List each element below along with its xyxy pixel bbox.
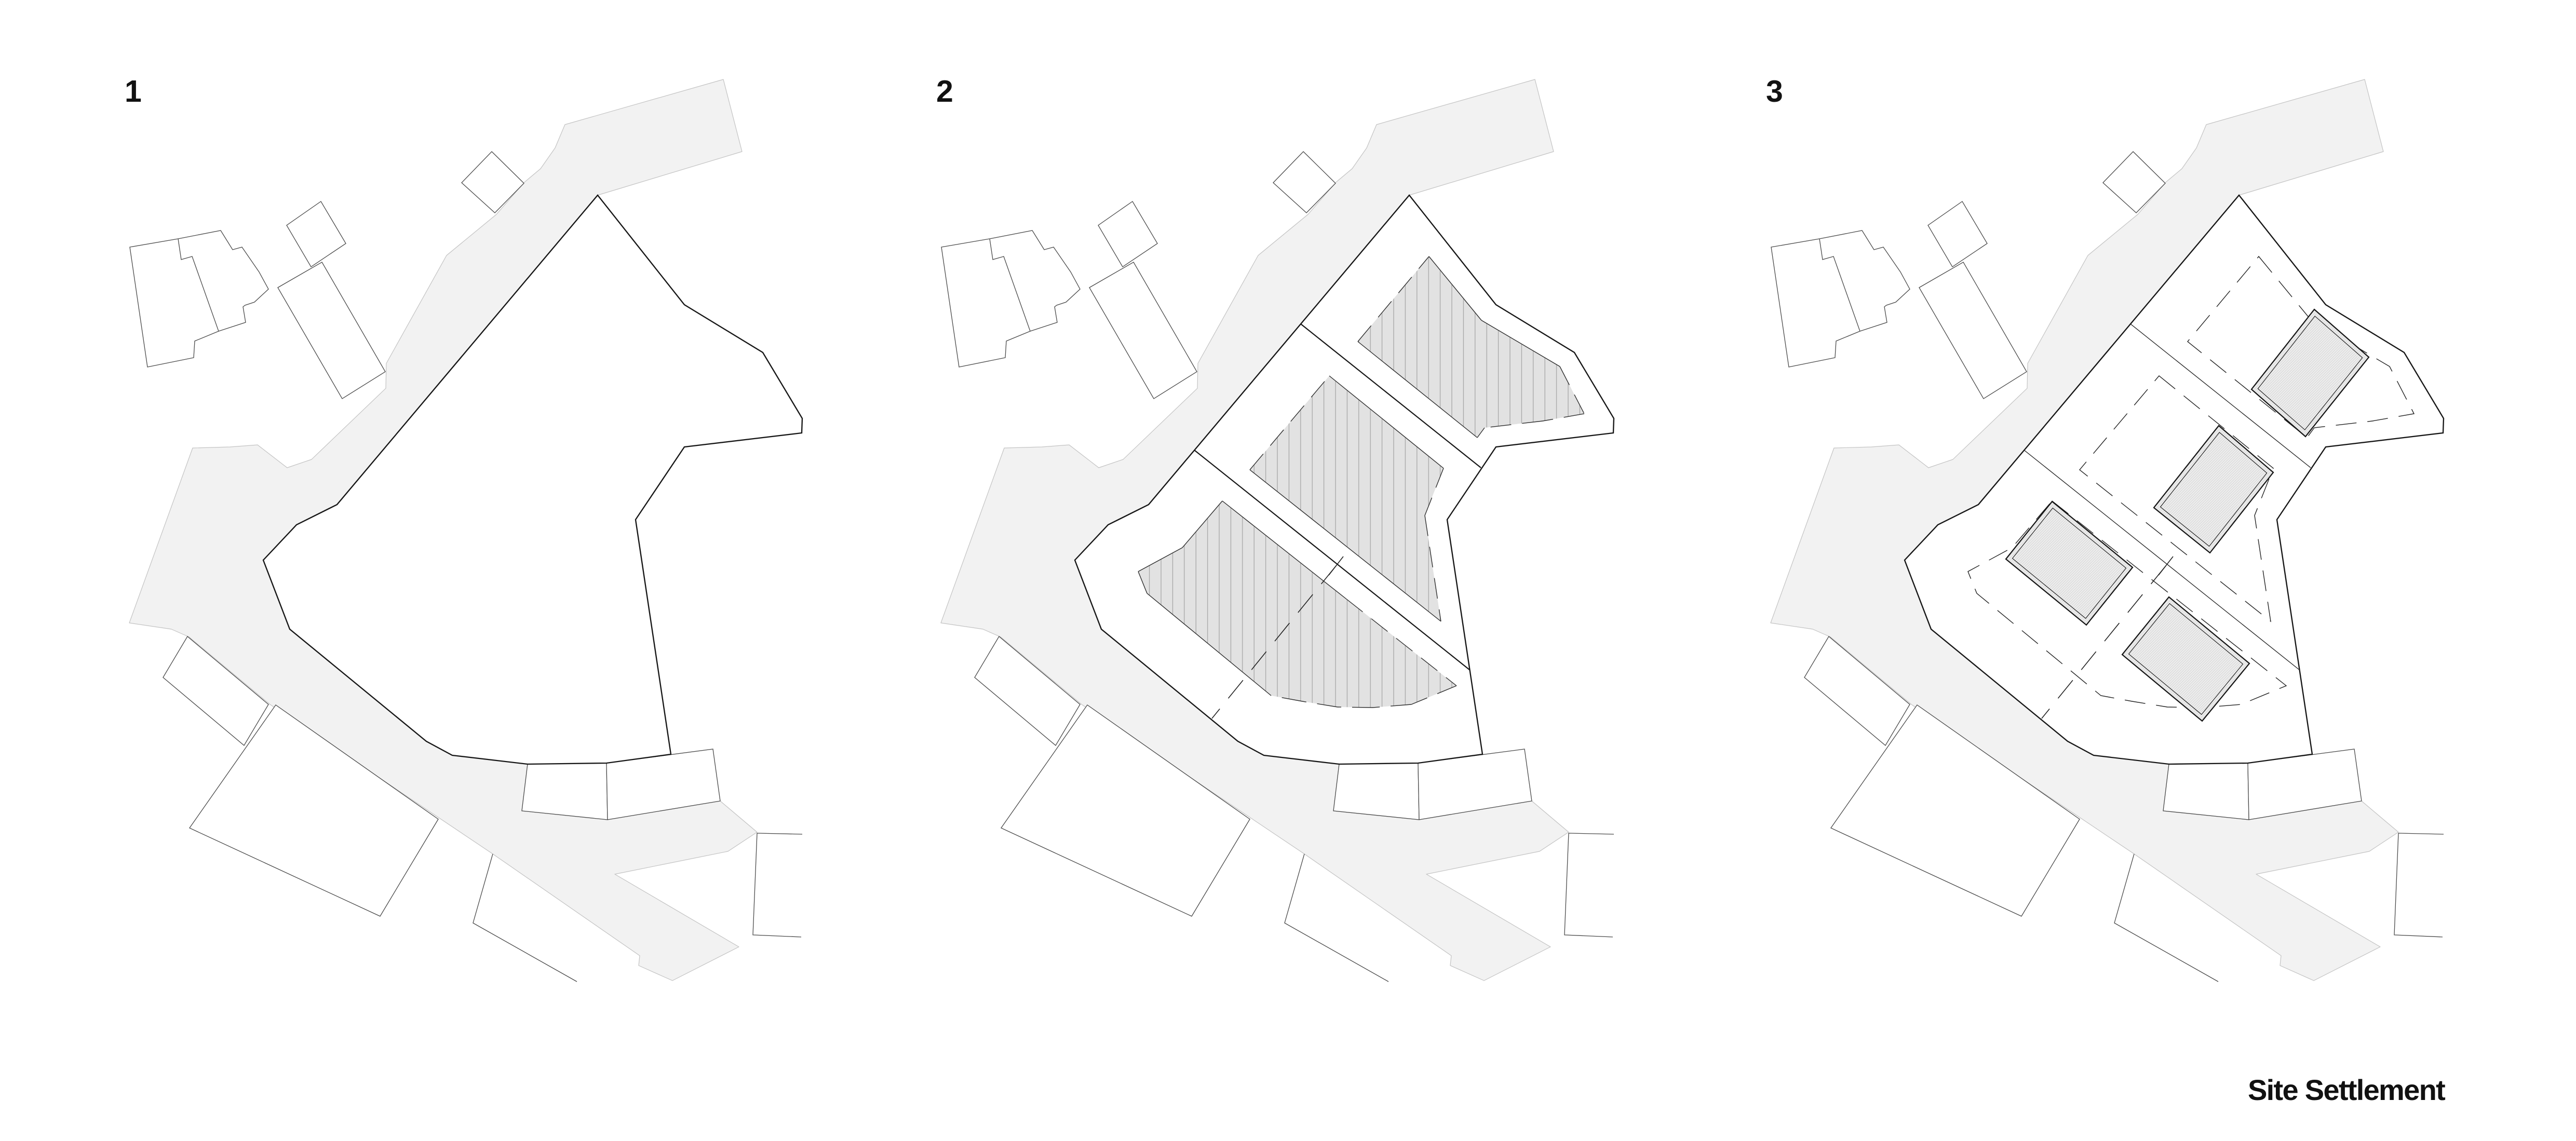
svg-text:1: 1	[125, 74, 142, 108]
svg-text:2: 2	[936, 74, 953, 108]
svg-text:Site Settlement: Site Settlement	[2248, 1074, 2445, 1106]
svg-text:3: 3	[1766, 74, 1783, 108]
